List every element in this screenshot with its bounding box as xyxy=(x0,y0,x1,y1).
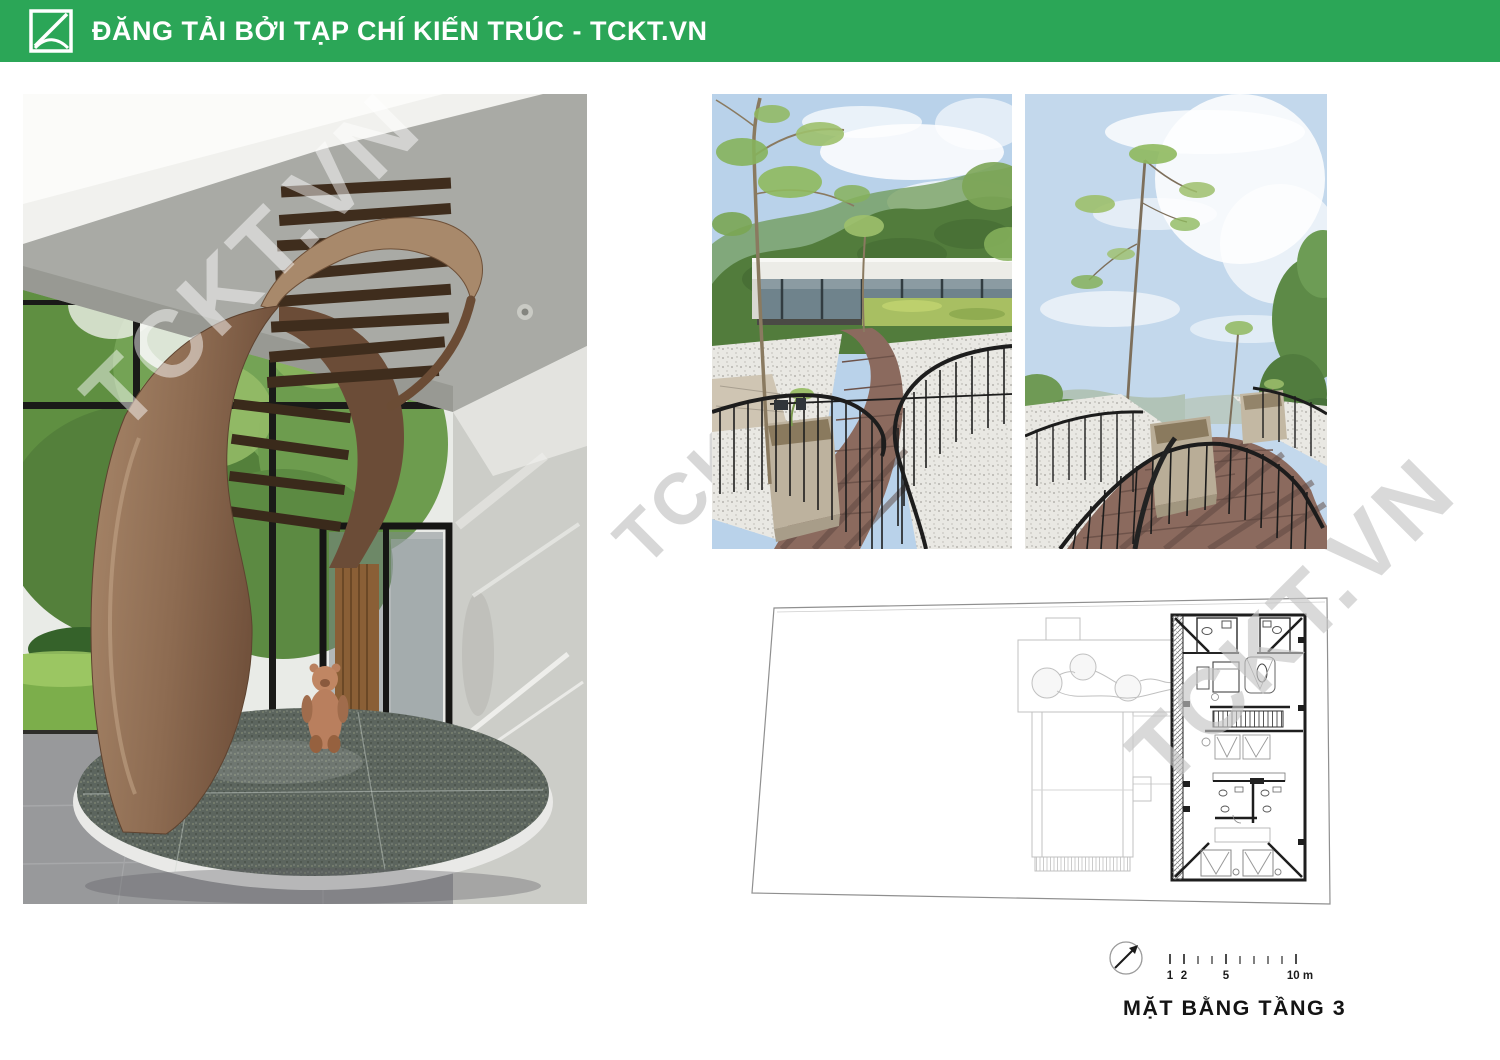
photo-spiral-staircase xyxy=(23,94,587,904)
photo-spiral-staircase-art xyxy=(23,94,587,904)
third-floor-plan xyxy=(1172,615,1305,880)
glass-pavilion xyxy=(752,258,1012,326)
floor-plan-drawing xyxy=(745,585,1360,910)
header-bar: ĐĂNG TẢI BỞI TẠP CHÍ KIẾN TRÚC - TCKT.VN xyxy=(0,0,1500,62)
scale-labels: 1 2 5 10 m xyxy=(1167,970,1313,982)
photo-rooftop-walkway-2 xyxy=(1025,94,1327,549)
magazine-page: ĐĂNG TẢI BỞI TẠP CHÍ KIẾN TRÚC - TCKT.VN… xyxy=(0,0,1500,1060)
photo-rooftop-walkway-1 xyxy=(712,94,1012,549)
floor-plan-svg xyxy=(745,585,1360,910)
north-arrow-icon xyxy=(1110,942,1142,974)
plan-caption: MẶT BẰNG TẦNG 3 xyxy=(1123,996,1346,1021)
scale-label-2: 2 xyxy=(1181,970,1187,982)
scale-label-10m: 10 m xyxy=(1287,970,1313,982)
scale-label-5: 5 xyxy=(1223,970,1230,982)
compass-scale-svg: 1 2 5 10 m xyxy=(1100,935,1330,987)
scale-label-1: 1 xyxy=(1167,970,1174,982)
compass-and-scale: 1 2 5 10 m xyxy=(1100,935,1330,987)
tckt-logo-icon xyxy=(28,8,74,54)
header-title: ĐĂNG TẢI BỞI TẠP CHÍ KIẾN TRÚC - TCKT.VN xyxy=(92,0,708,62)
scale-bar xyxy=(1170,954,1296,964)
photo-rooftop-walkway-2-art xyxy=(1025,94,1327,549)
photo-rooftop-walkway-1-art xyxy=(712,94,1012,549)
